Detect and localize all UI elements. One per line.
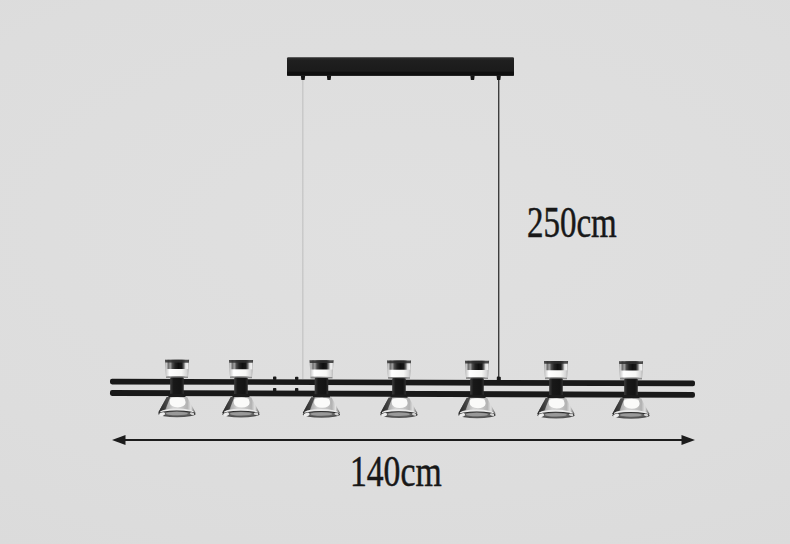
svg-text:140cm: 140cm [350, 447, 442, 495]
svg-text:250cm: 250cm [527, 197, 617, 246]
